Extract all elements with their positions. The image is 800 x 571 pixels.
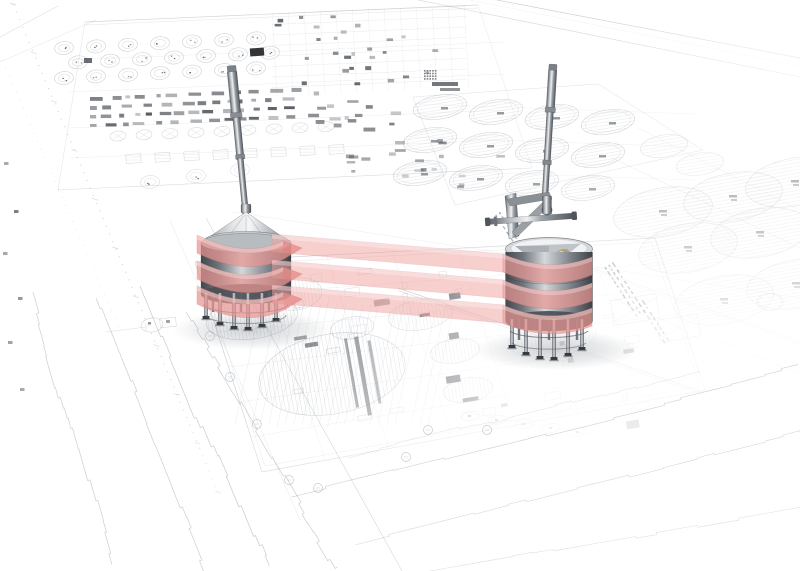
render-canvas bbox=[0, 0, 800, 571]
scene-svg bbox=[0, 0, 800, 571]
left-vessel-apex-collar bbox=[241, 204, 251, 213]
